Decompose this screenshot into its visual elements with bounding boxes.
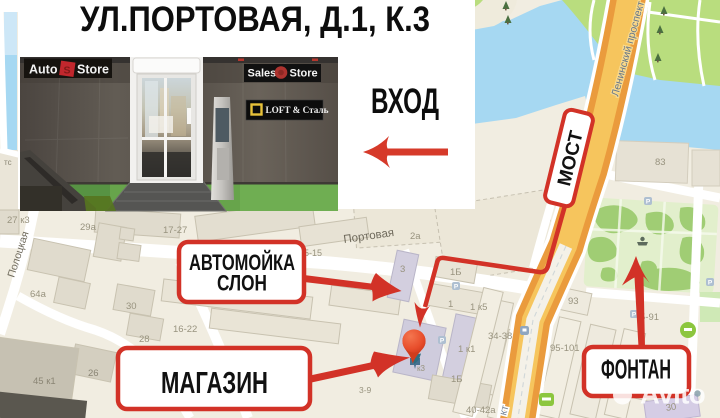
svg-text:1 к1: 1 к1 (458, 344, 475, 355)
svg-text:LOFT & Сталь: LOFT & Сталь (266, 105, 329, 115)
svg-text:45 к1: 45 к1 (33, 376, 56, 387)
svg-text:Auto: Auto (29, 63, 58, 77)
svg-text:1Б: 1Б (451, 374, 463, 385)
svg-text:1Б: 1Б (450, 267, 462, 278)
svg-text:2а: 2а (410, 231, 421, 242)
svg-text:тс: тс (4, 158, 12, 167)
svg-text:3: 3 (400, 264, 405, 275)
svg-text:64а: 64а (30, 289, 47, 300)
svg-text:34-38: 34-38 (488, 331, 512, 342)
svg-text:Sales: Sales (248, 68, 277, 80)
svg-text:МАГАЗИН: МАГАЗИН (161, 365, 268, 400)
svg-text:29а: 29а (80, 222, 97, 233)
svg-text:93: 93 (568, 296, 579, 307)
svg-text:S: S (64, 65, 71, 77)
svg-text:83: 83 (655, 157, 666, 168)
svg-text:27 к3: 27 к3 (7, 215, 30, 226)
svg-text:Store: Store (290, 68, 318, 80)
svg-text:УЛ.ПОРТОВАЯ, Д.1, К.3: УЛ.ПОРТОВАЯ, Д.1, К.3 (80, 0, 430, 39)
svg-text:95-101: 95-101 (550, 343, 580, 354)
svg-text:3-9: 3-9 (359, 385, 372, 395)
svg-text:30: 30 (126, 301, 137, 312)
svg-text:5-15: 5-15 (304, 248, 322, 258)
svg-text:СЛОН: СЛОН (217, 271, 267, 296)
svg-text:26: 26 (88, 368, 99, 379)
svg-text:1: 1 (448, 299, 453, 310)
svg-text:ВХОД: ВХОД (371, 82, 439, 121)
svg-text:к3: к3 (417, 364, 426, 373)
svg-text:16-22: 16-22 (173, 324, 197, 335)
svg-text:17-27: 17-27 (163, 225, 187, 236)
svg-text:40-42а: 40-42а (466, 405, 496, 416)
svg-text:1 к5: 1 к5 (470, 302, 487, 313)
svg-text:Store: Store (77, 63, 109, 77)
svg-text:28: 28 (139, 334, 150, 345)
